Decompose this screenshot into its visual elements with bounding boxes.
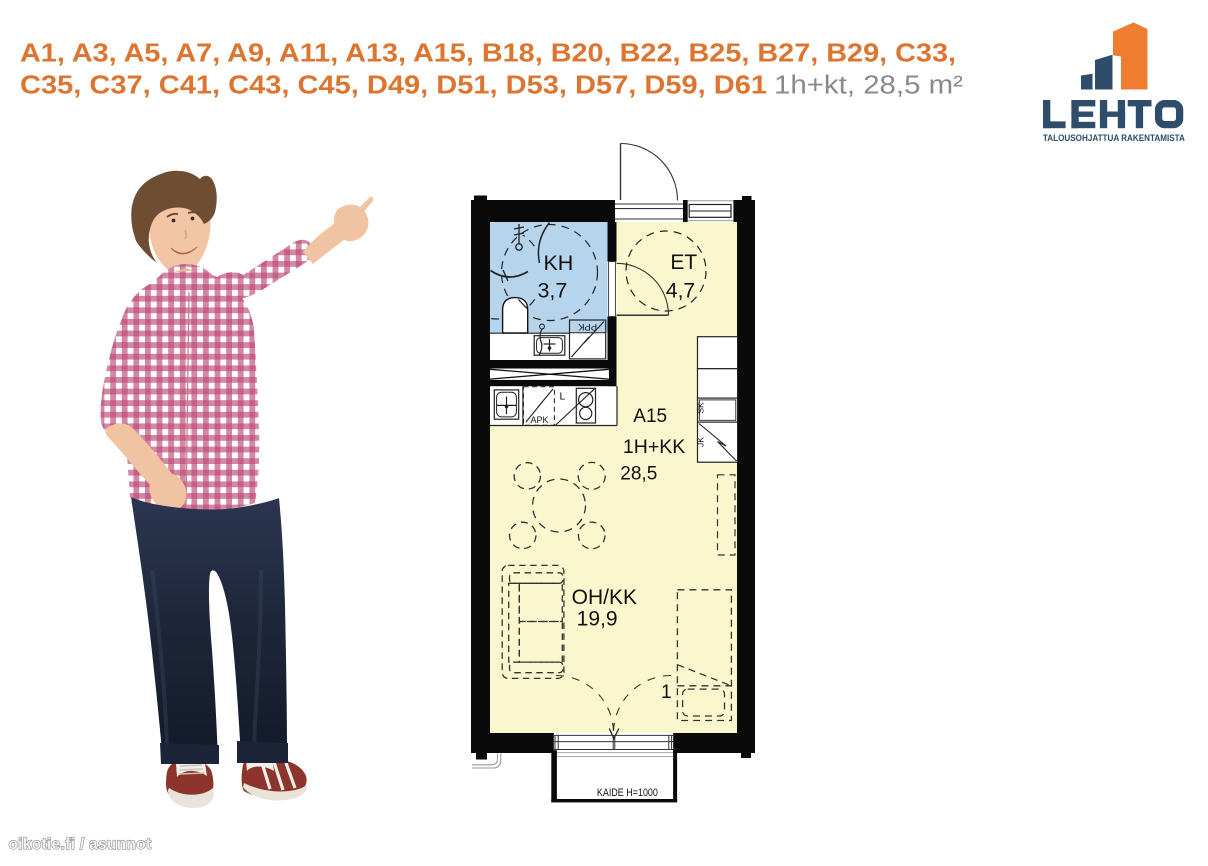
svg-text:1H+KK: 1H+KK [623,436,685,458]
svg-text:KH: KH [543,251,573,275]
svg-text:OH/KK: OH/KK [572,586,637,609]
svg-text:19,9: 19,9 [577,608,618,631]
svg-text:JK: JK [696,437,706,447]
svg-text:L: L [560,391,566,403]
svg-text:TALOUSOHJATTUA RAKENTAMISTA: TALOUSOHJATTUA RAKENTAMISTA [1043,133,1185,143]
svg-text:ET: ET [670,251,697,274]
svg-text:APK: APK [530,415,548,425]
svg-text:28,5: 28,5 [620,464,657,485]
svg-text:SK: SK [696,402,706,414]
svg-text:oikotie.fi / asunnot: oikotie.fi / asunnot [9,836,152,853]
svg-text:1: 1 [661,682,672,703]
svg-text:A1, A3, A5, A7, A9, A11, A13,: A1, A3, A5, A7, A9, A11, A13, A15, B18, … [20,40,956,68]
svg-text:C35, C37, C41, C43, C45, D49,: C35, C37, C41, C43, C45, D49, D51, D53, … [20,72,767,100]
svg-text:4,7: 4,7 [666,280,695,303]
svg-text:3,7: 3,7 [537,278,567,302]
svg-text:A15: A15 [633,406,667,427]
svg-text:1h+kt, 28,5 m²: 1h+kt, 28,5 m² [774,72,963,100]
svg-text:KAIDE H=1000: KAIDE H=1000 [597,787,658,799]
svg-text:PPK: PPK [577,321,597,332]
